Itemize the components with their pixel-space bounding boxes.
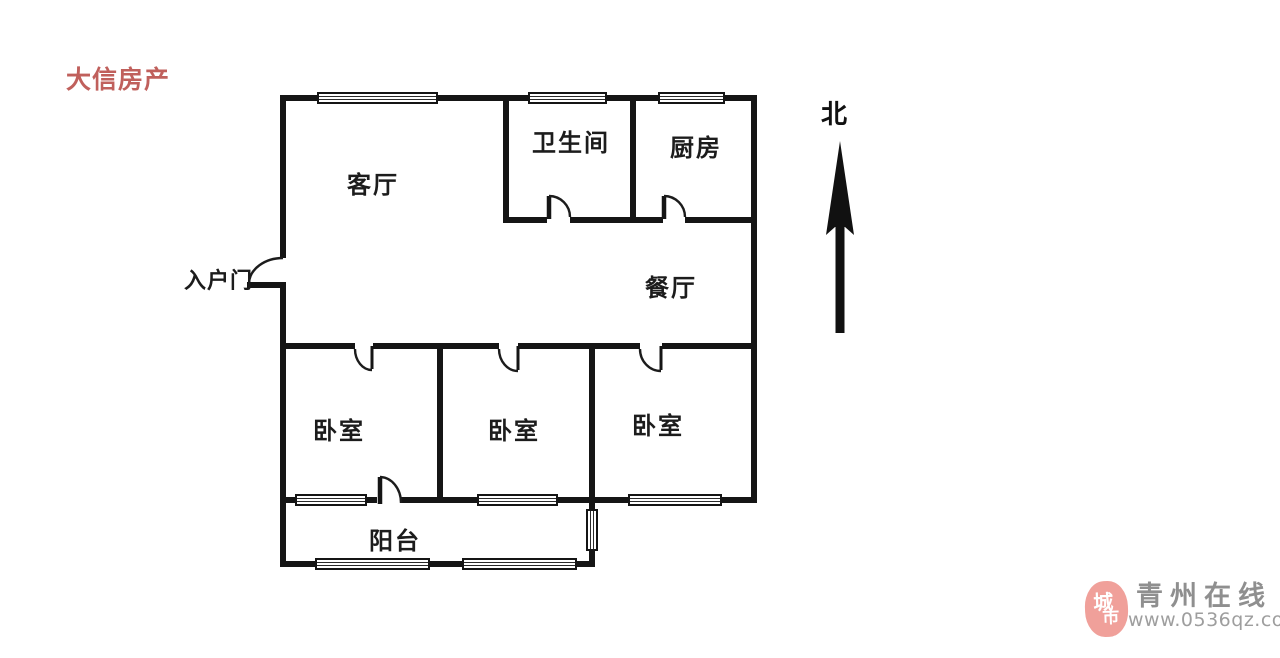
doors-and-compass-overlay bbox=[0, 0, 1280, 658]
label-kitchen: 厨房 bbox=[670, 136, 722, 160]
kitchen-door-arc bbox=[664, 196, 685, 217]
north-arrow-shaft bbox=[836, 227, 845, 333]
seal-char-bottom: 市 bbox=[1102, 609, 1120, 627]
north-arrow-head bbox=[826, 141, 854, 235]
entrance-door-arc bbox=[249, 258, 283, 283]
label-balcony: 阳台 bbox=[369, 529, 421, 553]
site-seal-logo: 城 市 bbox=[1084, 580, 1129, 637]
label-bedroom1: 卧室 bbox=[313, 419, 365, 443]
floorplan-page: 客厅 卫生间 厨房 餐厅 卧室 卧室 卧室 阳台 入户门 北 大信房产 城 市 … bbox=[0, 0, 1280, 658]
bedroom3-door-arc bbox=[640, 349, 661, 371]
label-dining-room: 餐厅 bbox=[645, 276, 697, 300]
agency-watermark: 大信房产 bbox=[66, 67, 170, 92]
label-living-room: 客厅 bbox=[347, 173, 399, 197]
bedroom2-door-arc bbox=[499, 349, 518, 371]
bedroom1-door-arc bbox=[355, 349, 372, 370]
site-url-watermark: www.0536qz.com bbox=[1128, 611, 1280, 630]
bathroom-door-arc bbox=[549, 196, 570, 217]
label-entrance-door: 入户门 bbox=[184, 271, 253, 293]
label-bedroom3: 卧室 bbox=[632, 414, 684, 438]
label-bedroom2: 卧室 bbox=[488, 419, 540, 443]
label-bathroom: 卫生间 bbox=[532, 131, 610, 155]
site-name-watermark: 青州在线 bbox=[1136, 583, 1272, 610]
north-label: 北 bbox=[821, 102, 847, 128]
balcony-door-arc bbox=[380, 477, 401, 503]
